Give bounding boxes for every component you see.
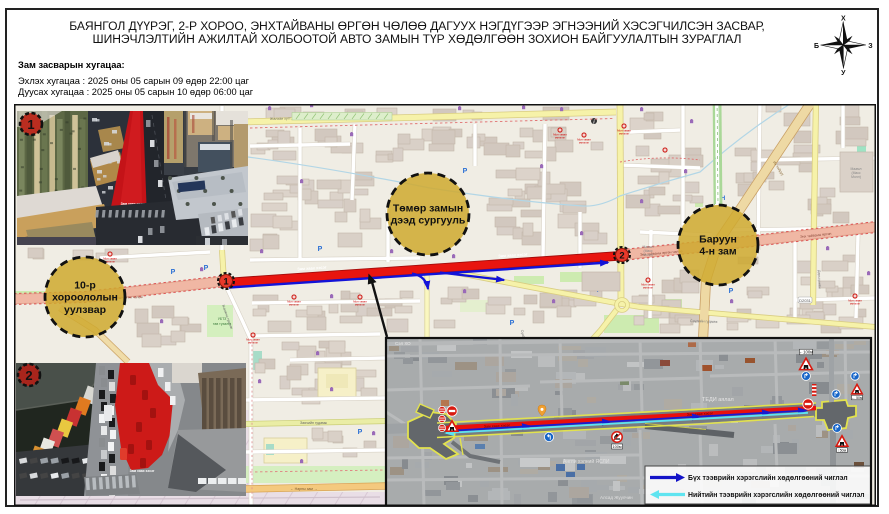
svg-text:4-н зам: 4-н зам (699, 246, 737, 258)
svg-text:Англи хэлний ЯСЛИ: Англи хэлний ЯСЛИ (563, 458, 610, 465)
svg-text:↱: ↱ (833, 391, 838, 398)
svg-text:хороололын: хороололын (52, 292, 118, 304)
svg-text:Молл): Молл) (851, 175, 861, 179)
svg-text:P: P (510, 320, 515, 327)
svg-text:уулзвар: уулзвар (64, 304, 106, 316)
svg-text:Сэл ХО: Сэл ХО (395, 341, 411, 346)
svg-text:Заячийн гудамж: Заячийн гудамж (300, 421, 328, 425)
svg-text:↑50м: ↑50м (838, 448, 847, 452)
svg-text:эмнэлэг: эмнэлэг (105, 260, 115, 264)
svg-text:Төмөр замын: Төмөр замын (393, 203, 463, 215)
svg-text:З: З (868, 43, 873, 50)
svg-text:дээд сургууль: дээд сургууль (391, 215, 466, 227)
svg-text:1: 1 (27, 117, 34, 132)
svg-text:1: 1 (223, 276, 229, 287)
svg-text:←100м: ←100м (799, 350, 813, 355)
svg-text:P: P (204, 265, 209, 272)
svg-text:эмнэлэг: эмнэлэг (579, 141, 589, 145)
svg-text:Б: Б (814, 43, 819, 50)
svg-text:эмнэлэг: эмнэлэг (248, 341, 258, 345)
svg-text:УБТЗ: УБТЗ (218, 317, 227, 321)
svg-text:P: P (729, 288, 734, 295)
svg-text:эмнэлэг: эмнэлэг (289, 303, 299, 307)
svg-text:У: У (841, 70, 846, 77)
svg-text:P: P (318, 246, 323, 253)
svg-text:↱: ↱ (834, 424, 840, 432)
svg-text:↰: ↰ (546, 433, 552, 441)
svg-text:Алсад Жуулчин: Алсад Жуулчин (600, 495, 633, 500)
svg-text:↱: ↱ (803, 372, 809, 380)
svg-text:← 50м: ← 50м (852, 396, 863, 400)
svg-text:эмнэлэг: эмнэлэг (619, 132, 629, 136)
svg-text:эмнэлэг: эмнэлэг (643, 286, 653, 290)
svg-text:P: P (463, 168, 468, 175)
svg-text:2: 2 (619, 250, 624, 261)
svg-text:10-р: 10-р (74, 280, 96, 292)
svg-text:эмнэлэг: эмнэлэг (850, 302, 860, 306)
svg-text:тав тухалгт: тав тухалгт (213, 322, 232, 326)
svg-text:P: P (358, 429, 363, 436)
svg-text:Бүх тээврийн хэрэгслийн хөдөлг: Бүх тээврийн хэрэгслийн хөдөлгөөний чигл… (688, 474, 848, 482)
svg-text:D2031: D2031 (799, 298, 812, 303)
svg-text:Баруун: Баруун (699, 234, 737, 246)
svg-text:100м: 100м (612, 444, 621, 449)
svg-text:↱: ↱ (852, 373, 857, 380)
svg-text:Зам хаах хэсэг: Зам хаах хэсэг (130, 469, 155, 473)
svg-text:Нийтийн тээврийн хэрэгслийн хө: Нийтийн тээврийн хэрэгслийн хөдөлгөөний … (688, 491, 865, 499)
svg-text:эмнэлэг: эмнэлэг (555, 136, 565, 140)
svg-text:P: P (171, 269, 176, 276)
svg-text:ТЕДИ аялал: ТЕДИ аялал (702, 397, 734, 403)
svg-text:Х: Х (841, 16, 846, 23)
svg-text:← Нарны зам →: ← Нарны зам → (290, 487, 317, 491)
svg-text:Молл): Молл) (643, 253, 653, 257)
svg-text:Дарьсүхийн: Дарьсүхийн (817, 270, 822, 289)
svg-text:2: 2 (25, 368, 32, 383)
svg-text:эмнэлэг: эмнэлэг (355, 303, 365, 307)
